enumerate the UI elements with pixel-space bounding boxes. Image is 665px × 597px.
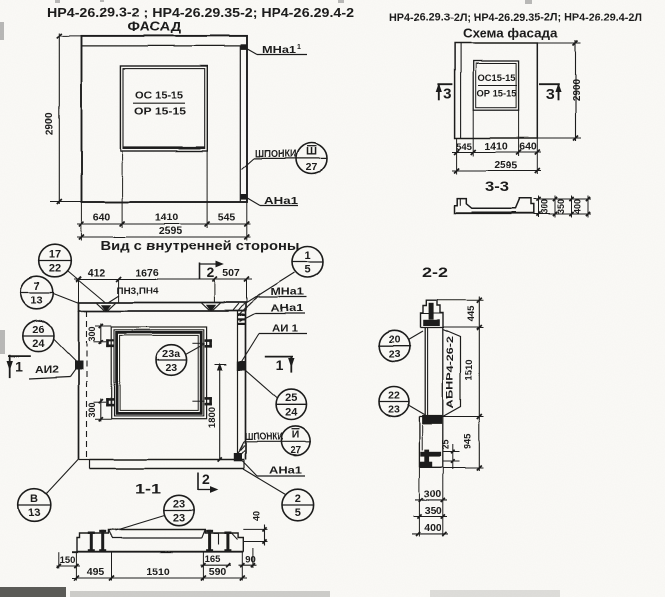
svg-text:640: 640 xyxy=(519,141,537,153)
svg-text:25: 25 xyxy=(440,439,450,449)
svg-text:2: 2 xyxy=(207,264,215,280)
svg-text:445: 445 xyxy=(466,305,477,322)
svg-text:2595: 2595 xyxy=(159,225,183,237)
svg-text:ОС 15-15: ОС 15-15 xyxy=(135,90,183,102)
svg-text:22: 22 xyxy=(49,263,61,275)
svg-text:13: 13 xyxy=(28,507,40,519)
svg-text:1510: 1510 xyxy=(464,360,475,381)
svg-text:НР4-26.29.3-2 ; НР4-26.29.35-: НР4-26.29.3-2 ; НР4-26.29.35-2; НР4-26.2… xyxy=(47,6,354,20)
svg-text:350: 350 xyxy=(425,505,443,517)
svg-text:АНа1: АНа1 xyxy=(269,466,303,477)
svg-text:ПН3,ПН4: ПН3,ПН4 xyxy=(117,286,160,297)
svg-text:1: 1 xyxy=(15,358,23,374)
svg-text:400: 400 xyxy=(573,199,583,214)
svg-text:3-3: 3-3 xyxy=(485,179,510,194)
svg-text:300: 300 xyxy=(87,402,97,417)
svg-text:3: 3 xyxy=(546,86,554,103)
svg-text:Ш: Ш xyxy=(306,146,317,158)
svg-text:5: 5 xyxy=(304,264,310,276)
svg-text:ОР 15-15: ОР 15-15 xyxy=(477,89,518,100)
svg-text:АБНР4-26-2: АБНР4-26-2 xyxy=(445,337,456,409)
svg-text:590: 590 xyxy=(209,566,227,578)
svg-text:2595: 2595 xyxy=(494,159,518,171)
svg-text:350: 350 xyxy=(556,199,566,214)
svg-text:13: 13 xyxy=(31,295,43,307)
svg-text:Вид с внутренней стороны: Вид с внутренней стороны xyxy=(101,238,300,253)
svg-text:2-2: 2-2 xyxy=(422,265,448,280)
svg-text:27: 27 xyxy=(290,446,302,457)
svg-text:7: 7 xyxy=(34,280,40,292)
svg-text:2900: 2900 xyxy=(44,112,55,135)
svg-text:1410: 1410 xyxy=(484,141,508,153)
svg-text:23: 23 xyxy=(165,362,177,374)
svg-text:400: 400 xyxy=(424,522,442,534)
svg-text:1: 1 xyxy=(304,250,310,262)
svg-text:ФАСАД: ФАСАД xyxy=(128,20,182,34)
svg-text:ОС15-15: ОС15-15 xyxy=(478,73,517,84)
svg-text:1510: 1510 xyxy=(146,566,170,578)
svg-text:1800: 1800 xyxy=(207,407,218,428)
svg-text:23: 23 xyxy=(388,404,400,416)
svg-text:27: 27 xyxy=(306,162,318,174)
svg-text:23: 23 xyxy=(173,498,185,510)
svg-text:495: 495 xyxy=(87,566,105,578)
svg-text:300: 300 xyxy=(540,199,550,214)
svg-text:ОР 15-15: ОР 15-15 xyxy=(134,106,186,118)
svg-text:40: 40 xyxy=(251,511,261,521)
svg-text:5: 5 xyxy=(295,507,301,519)
svg-text:1410: 1410 xyxy=(155,212,179,224)
svg-text:24: 24 xyxy=(285,407,298,419)
svg-text:23: 23 xyxy=(173,513,185,525)
svg-text:507: 507 xyxy=(222,267,240,279)
svg-text:1: 1 xyxy=(297,44,301,51)
svg-text:1: 1 xyxy=(276,357,284,373)
svg-text:2: 2 xyxy=(295,493,301,505)
svg-text:АНа1: АНа1 xyxy=(270,304,304,315)
svg-text:МНа1: МНа1 xyxy=(271,287,305,298)
svg-text:1676: 1676 xyxy=(135,267,159,279)
svg-text:300: 300 xyxy=(87,326,97,341)
svg-text:17: 17 xyxy=(49,248,61,260)
svg-text:АИ 1: АИ 1 xyxy=(272,324,299,335)
svg-text:АИ2: АИ2 xyxy=(35,365,60,376)
svg-text:545: 545 xyxy=(218,212,236,224)
svg-text:23а: 23а xyxy=(163,348,181,360)
svg-text:В: В xyxy=(31,493,39,505)
svg-text:2: 2 xyxy=(203,471,211,487)
svg-text:90: 90 xyxy=(245,555,256,566)
svg-text:300: 300 xyxy=(424,489,442,501)
svg-text:165: 165 xyxy=(205,554,222,565)
svg-text:25: 25 xyxy=(285,393,297,405)
svg-text:23: 23 xyxy=(389,348,401,360)
svg-text:945: 945 xyxy=(462,433,473,450)
svg-text:545: 545 xyxy=(456,142,473,153)
svg-text:412: 412 xyxy=(88,267,106,279)
svg-text:Схема фасада: Схема фасада xyxy=(463,26,559,41)
svg-text:24: 24 xyxy=(32,338,45,350)
svg-text:2900: 2900 xyxy=(572,78,583,101)
svg-text:1-1: 1-1 xyxy=(135,482,162,497)
svg-text:НР4-26.29.3-2Л; НР4-26.29.35-2: НР4-26.29.3-2Л; НР4-26.29.35-2Л; НР4-26.… xyxy=(389,12,642,24)
svg-text:640: 640 xyxy=(93,212,111,224)
svg-text:26: 26 xyxy=(32,324,44,336)
svg-text:22: 22 xyxy=(388,389,400,401)
svg-text:3: 3 xyxy=(443,86,451,103)
svg-text:20: 20 xyxy=(389,334,401,346)
svg-text:150: 150 xyxy=(60,555,76,566)
svg-text:И: И xyxy=(292,429,300,441)
